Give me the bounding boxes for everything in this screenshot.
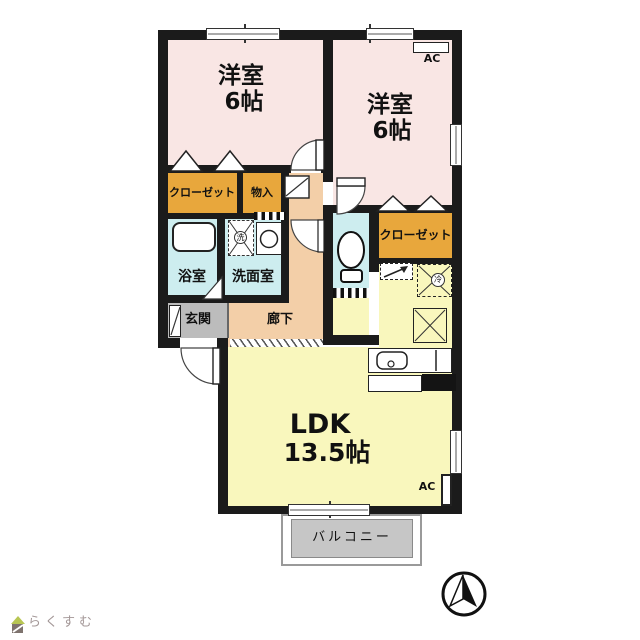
wall-bath-divider — [217, 219, 225, 303]
window-bedroom2-top — [366, 28, 414, 40]
entrance-door-opening — [180, 338, 217, 348]
ldk-name: LDK — [270, 411, 370, 439]
door-arc-entrance — [181, 348, 217, 384]
wall-bedroom2-bottom — [323, 205, 462, 213]
logo-text: らくすむ — [28, 616, 98, 630]
hallway-floor-vertical — [289, 173, 323, 303]
ldk-size: 13.5帖 — [259, 440, 395, 466]
logo-house-stripe — [13, 625, 23, 632]
wall-toilet-nook-bottom — [323, 335, 379, 345]
washroom-label: 洗面室 — [218, 270, 288, 285]
window-balcony-sliding — [288, 504, 370, 516]
toilet-floor — [333, 213, 369, 288]
logo-house-roof-icon — [11, 616, 25, 624]
window-bedroom2-right — [450, 124, 462, 166]
wall-ldk-left — [218, 338, 228, 514]
washbasin-counter — [256, 222, 282, 255]
window-bedroom1-top — [206, 28, 280, 40]
bathroom-label: 浴室 — [167, 270, 217, 285]
wall-bedroom1-bottom-b — [321, 165, 333, 173]
wall-top — [158, 30, 462, 40]
logo-house-body-icon — [12, 624, 23, 633]
sliding-door-hallway-ldk — [230, 339, 323, 347]
washstand-counter-stripes — [254, 212, 286, 220]
kitchen-lower-cabinet — [368, 375, 422, 392]
closet2-label: クローゼット — [379, 229, 452, 242]
compass-needle-east — [463, 575, 477, 607]
ac-label-ldk: AC — [414, 481, 440, 493]
wall-bedroom-divider — [323, 30, 333, 182]
ac-label-bedroom2: AC — [417, 53, 447, 65]
kitchen-end-panel — [422, 374, 456, 391]
upper-cabinet-dashed — [380, 263, 413, 280]
wall-bath-bottom — [158, 295, 289, 303]
washer-mark: 洗 — [237, 233, 245, 242]
balcony-label: バルコニー — [302, 531, 402, 545]
hallway-label: 廊下 — [255, 313, 305, 327]
storage-label: 物入 — [242, 187, 282, 199]
closet1-label: クローゼット — [167, 187, 237, 199]
fridge-mark-circle: 冷 — [431, 273, 445, 287]
ac-unit-ldk — [441, 474, 452, 506]
entrance-label: 玄関 — [173, 313, 223, 327]
wall-toilet-left — [323, 213, 333, 335]
toilet-door-stripes — [333, 288, 369, 298]
bedroom2-size: 6帖 — [342, 119, 442, 143]
bedroom1-name: 洋室 — [191, 64, 291, 88]
ldk-floor-toilet-nook — [333, 298, 369, 335]
entrance-step-line — [227, 303, 229, 338]
bedroom2-name: 洋室 — [340, 93, 440, 117]
compass-needle-west — [450, 575, 463, 606]
fridge-mark: 冷 — [434, 275, 442, 284]
floorplan-image: 洗 冷 洋室 6帖 洋室 6帖 クローゼット 物入 クローゼット 浴室 洗面室 … — [0, 0, 640, 640]
cupboard-space — [413, 308, 447, 343]
wall-bedroom1-bottom-a — [158, 165, 291, 173]
bedroom1-size: 6帖 — [194, 90, 294, 114]
washer-mark-circle: 洗 — [234, 231, 247, 244]
bathtub — [172, 222, 216, 252]
window-ldk-right — [450, 430, 462, 474]
compass-circle — [443, 573, 485, 615]
kitchen-counter — [368, 348, 452, 373]
